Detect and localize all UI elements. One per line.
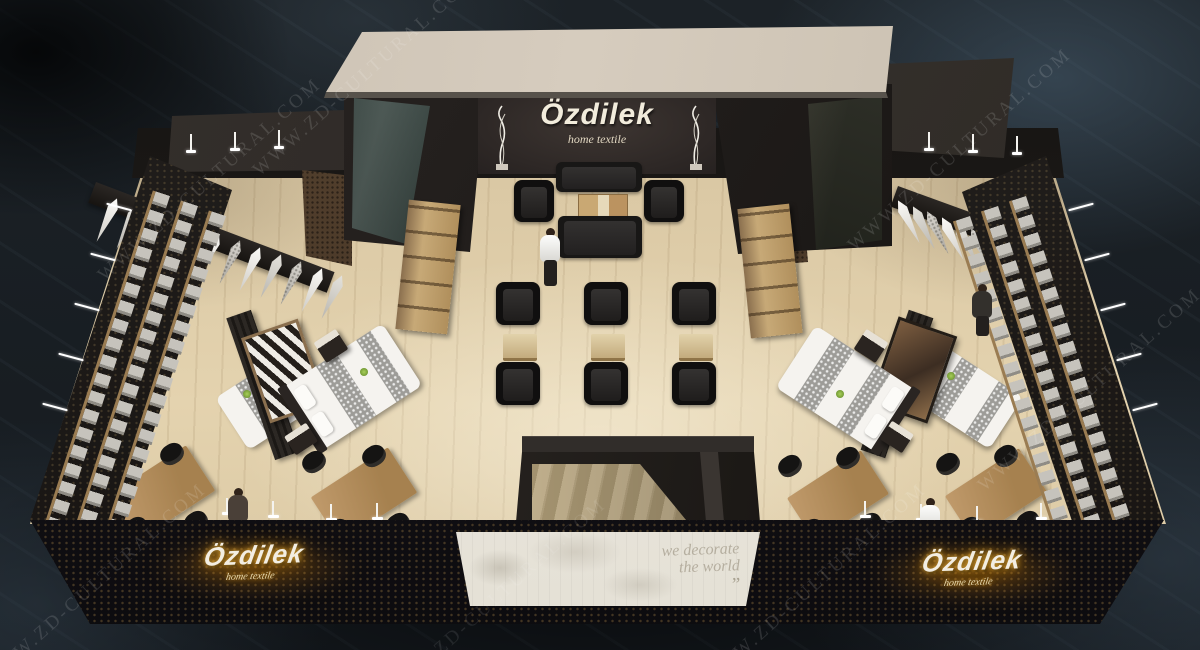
seated-visitor — [228, 488, 248, 522]
wall-lamp — [326, 504, 337, 521]
lounge-sofa-back — [556, 162, 642, 192]
person-torso — [972, 291, 992, 318]
lounge-armchair — [496, 282, 540, 325]
person-legs — [544, 260, 557, 286]
glow-sign-left: Özdilek home textile — [154, 537, 351, 586]
plant-accent — [836, 390, 844, 398]
lounge-armchair — [496, 362, 540, 405]
glow-sign-right: Özdilek home textile — [872, 543, 1069, 592]
pendant-lamp — [1012, 136, 1022, 155]
person-legs — [976, 316, 989, 336]
person-torso — [228, 495, 248, 522]
wall-lamp — [268, 501, 279, 518]
twig-sculpture-right — [686, 104, 706, 170]
stair-guard-rail — [522, 436, 754, 453]
lounge-armchair — [672, 282, 716, 325]
wall-lamp — [1036, 503, 1047, 520]
standing-visitor — [540, 228, 560, 286]
wall-lamp — [860, 501, 871, 518]
exhibition-stand-render: Özdilek home textile — [0, 0, 1200, 650]
side-table — [679, 334, 713, 361]
standing-visitor — [972, 284, 992, 336]
entrance-tagline-text: home textile — [502, 132, 692, 147]
slogan-text: we decorate the world ” — [579, 540, 741, 601]
plant-accent — [947, 372, 955, 380]
lounge-armchair — [584, 362, 628, 405]
lounge-armchair — [644, 180, 684, 222]
plant-accent — [243, 390, 251, 398]
entrance-sign: Özdilek home textile — [502, 98, 692, 147]
plant-accent — [360, 368, 368, 376]
lounge-sofa-front — [558, 216, 642, 258]
lounge-armchair — [584, 282, 628, 325]
pendant-lamp — [924, 132, 934, 151]
side-table — [503, 334, 537, 361]
lounge-armchair — [514, 180, 554, 222]
pendant-lamp — [186, 134, 196, 153]
twig-sculpture-left — [492, 104, 512, 170]
person-torso — [540, 235, 560, 262]
side-table — [591, 334, 625, 361]
lounge-armchair — [672, 362, 716, 405]
bed-runner — [794, 337, 854, 412]
wall-lamp — [372, 503, 383, 520]
entrance-logo-text: Özdilek — [502, 98, 692, 132]
